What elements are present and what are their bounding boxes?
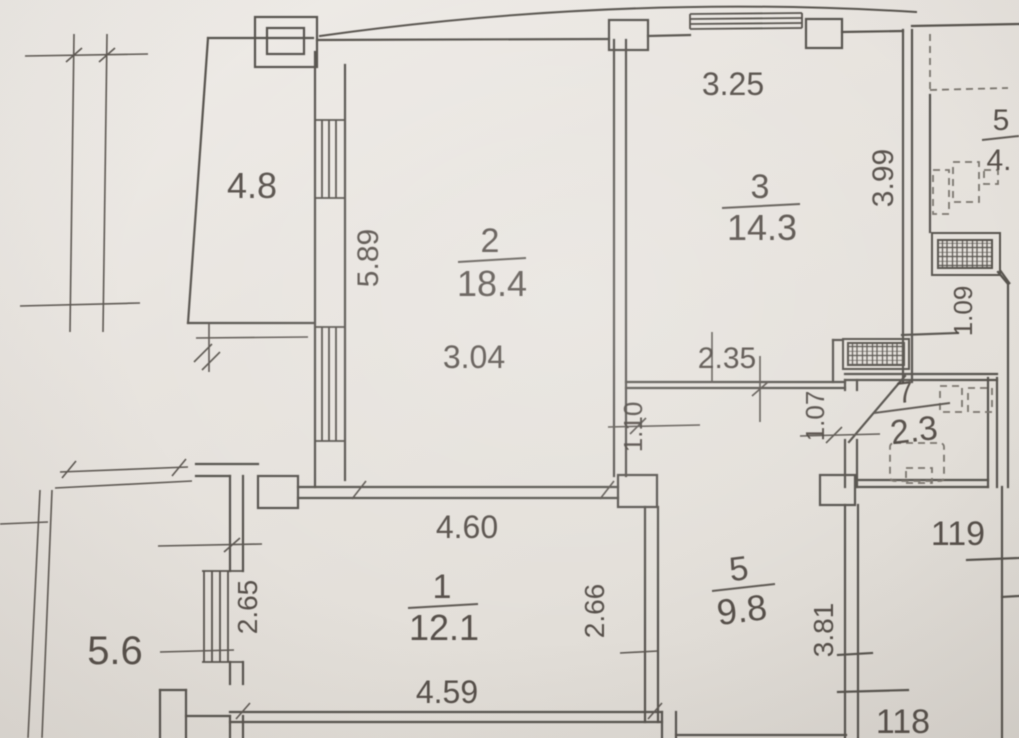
dim-2-66: 2.66 — [579, 584, 610, 639]
dim-4-59: 4.59 — [416, 674, 478, 710]
dim-1-07: 1.07 — [800, 391, 830, 442]
dim-4-60: 4.60 — [436, 509, 498, 545]
room-5b-number: 5 — [993, 104, 1010, 137]
dim-2-65: 2.65 — [232, 580, 263, 635]
apartment-number-119: 119 — [931, 515, 985, 553]
room-1-area: 12.1 — [409, 607, 479, 648]
dim-5-89: 5.89 — [352, 229, 385, 287]
floorplan-drawing: 2 18.4 3 14.3 1 12.1 5 9.8 7 2.3 5 4. 4.… — [0, 0, 1019, 738]
room-5-number: 5 — [727, 549, 750, 589]
vent-shafts — [843, 233, 1010, 369]
dim-3-81: 3.81 — [808, 603, 839, 658]
room-3-area: 14.3 — [727, 207, 797, 248]
room-2-number: 2 — [481, 222, 500, 260]
room-1-number: 1 — [433, 568, 452, 606]
dim-1-09: 1.09 — [948, 286, 978, 337]
room-5-area: 9.8 — [714, 586, 769, 633]
room-2-area: 18.4 — [457, 263, 527, 304]
dim-2-35: 2.35 — [698, 342, 756, 375]
room-7-area: 2.3 — [888, 409, 940, 452]
labels: 2 18.4 3 14.3 1 12.1 5 9.8 7 2.3 5 4. 4.… — [87, 66, 1011, 738]
dim-3-25: 3.25 — [702, 66, 764, 102]
balcony-area-top: 4.8 — [227, 165, 277, 206]
room-5b-area: 4. — [986, 144, 1011, 177]
dim-1-10: 1.10 — [618, 402, 648, 453]
dim-3-99: 3.99 — [867, 149, 900, 207]
apartment-number-118: 118 — [876, 703, 930, 738]
dim-3-04: 3.04 — [443, 339, 505, 375]
balcony-area-bottom: 5.6 — [87, 629, 143, 673]
floorplan-scan: 2 18.4 3 14.3 1 12.1 5 9.8 7 2.3 5 4. 4.… — [0, 0, 1019, 738]
room-3-number: 3 — [751, 168, 770, 206]
